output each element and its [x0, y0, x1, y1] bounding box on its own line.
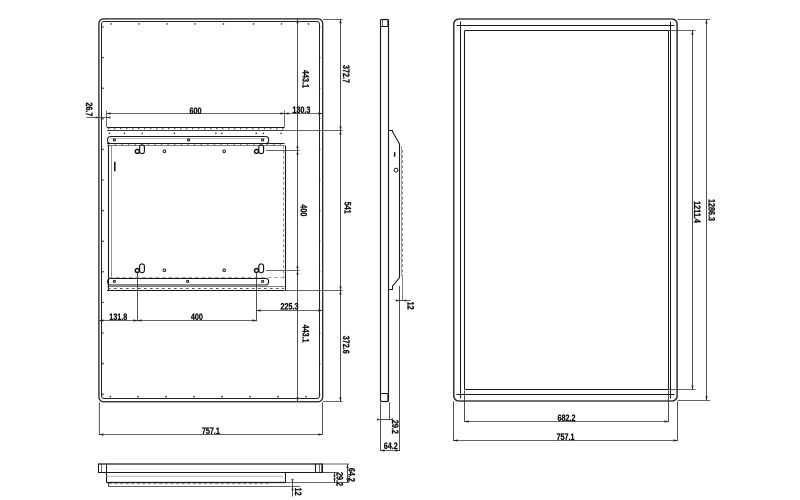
- svg-text:225.3: 225.3: [281, 301, 299, 311]
- svg-text:400: 400: [191, 312, 203, 322]
- svg-text:12: 12: [406, 302, 416, 310]
- svg-text:29.2: 29.2: [390, 420, 400, 434]
- svg-text:29.2: 29.2: [334, 472, 344, 486]
- svg-text:26.7: 26.7: [84, 102, 94, 116]
- svg-text:130.3: 130.3: [292, 105, 310, 115]
- svg-text:372.7: 372.7: [341, 65, 351, 83]
- svg-text:131.8: 131.8: [109, 312, 127, 322]
- svg-text:12: 12: [293, 488, 303, 496]
- svg-text:1286.3: 1286.3: [706, 199, 716, 221]
- svg-text:541: 541: [343, 202, 353, 214]
- svg-text:400: 400: [299, 204, 309, 216]
- svg-text:682.2: 682.2: [558, 413, 576, 423]
- svg-text:64.2: 64.2: [347, 468, 357, 482]
- svg-text:443.1: 443.1: [301, 325, 311, 343]
- svg-text:757.1: 757.1: [557, 432, 575, 442]
- svg-text:443.1: 443.1: [301, 70, 311, 88]
- svg-text:600: 600: [190, 106, 202, 116]
- svg-text:1211.4: 1211.4: [692, 201, 702, 223]
- svg-text:64.2: 64.2: [384, 441, 398, 451]
- svg-text:372.6: 372.6: [341, 336, 351, 354]
- svg-text:757.1: 757.1: [202, 426, 220, 436]
